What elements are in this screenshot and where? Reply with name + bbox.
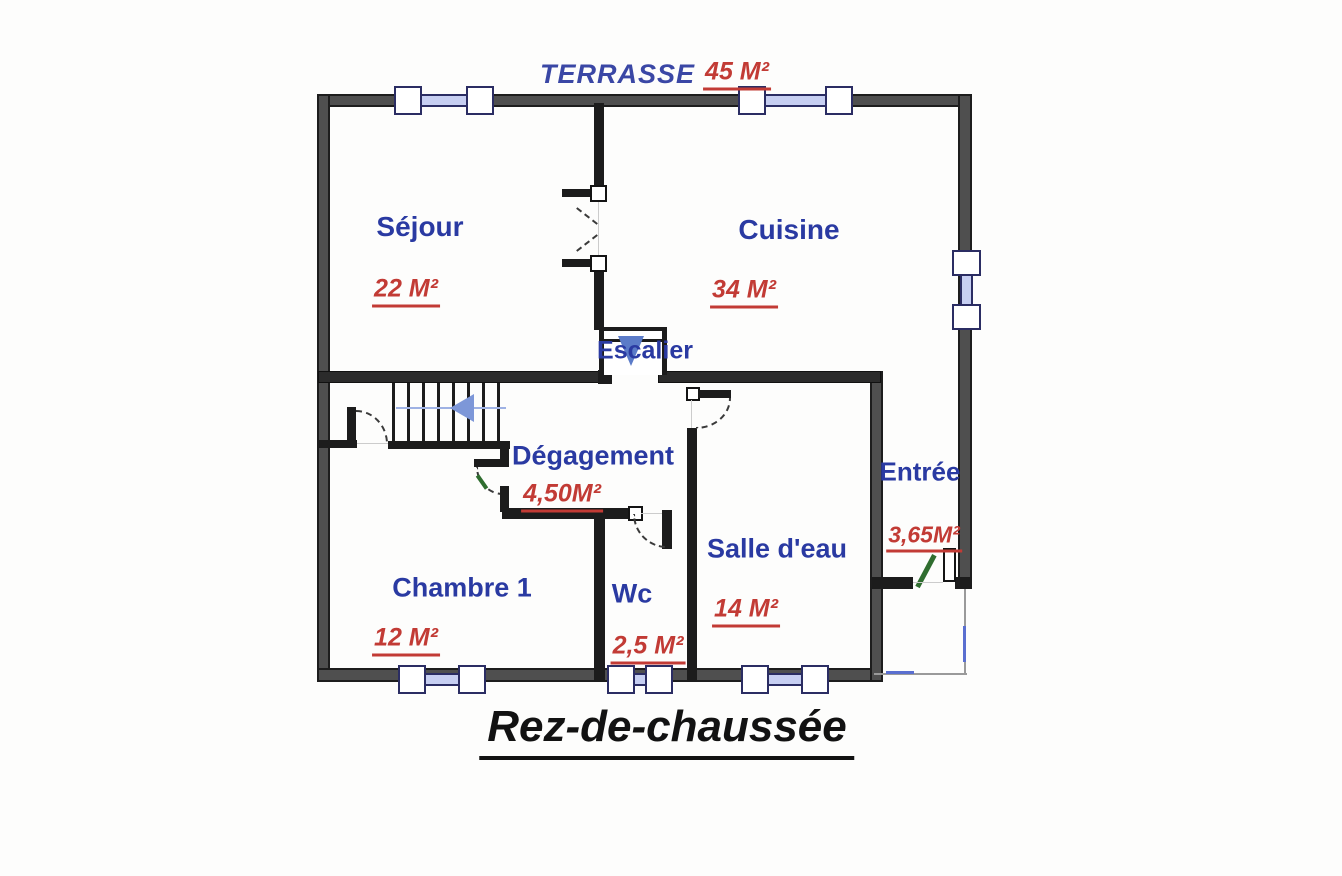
- porch-mark-vertical: [963, 626, 966, 662]
- door-sejour-swing-bottom: [576, 234, 598, 252]
- door-salledeau-leaf: [698, 390, 731, 398]
- stair-tread: [437, 383, 440, 447]
- window-glass: [769, 673, 801, 686]
- floor-plan: TERRASSE 45 M² Séjour 22 M² Cuisine 34 M…: [0, 0, 1342, 876]
- window-salledeau-bottom: [741, 666, 829, 693]
- window-glass: [766, 94, 825, 107]
- room-label-degagement: Dégagement: [512, 441, 674, 472]
- door-sejour-swing-top: [576, 207, 598, 225]
- window-pane: [952, 250, 981, 276]
- stair-tread: [497, 383, 500, 447]
- terrasse-area: 45 M²: [703, 58, 771, 91]
- wall-chambre-wc: [594, 515, 605, 682]
- window-pane: [458, 665, 486, 694]
- wall-entree-bottom: [870, 577, 913, 589]
- window-chambre-bottom: [398, 666, 486, 693]
- room-area-degagement: 4,50M²: [521, 480, 603, 513]
- window-sejour-top: [394, 87, 494, 114]
- stair-tread: [422, 383, 425, 447]
- room-area-chambre1: 12 M²: [372, 624, 440, 657]
- stair-direction-arrow: [450, 394, 474, 422]
- window-wc-bottom: [607, 666, 673, 693]
- door-sejour-jamb-bottom: [590, 255, 607, 272]
- door-chambre-left-swing: [356, 410, 388, 444]
- door-sejour-threshold: [598, 202, 599, 256]
- porch-mark-horizontal: [886, 671, 914, 674]
- room-label-entree: Entrée: [880, 457, 961, 488]
- wall-entree-divider: [870, 371, 883, 682]
- window-glass: [422, 94, 466, 107]
- wall-right: [958, 94, 972, 589]
- plan-title: Rez-de-chaussée: [479, 702, 854, 760]
- door-salledeau-threshold: [691, 400, 692, 428]
- wall-left: [317, 94, 330, 682]
- room-area-entree: 3,65M²: [886, 522, 962, 553]
- door-salledeau-swing: [696, 398, 731, 429]
- window-pane: [741, 665, 769, 694]
- front-door-leaf: [915, 554, 936, 588]
- door-wc-swing: [633, 514, 667, 548]
- door-chambre-left-threshold: [357, 443, 388, 444]
- window-pane: [466, 86, 494, 115]
- wall-sejour-upper: [594, 103, 604, 188]
- stair-bottom-wall: [388, 441, 510, 449]
- terrasse-label: TERRASSE: [540, 59, 695, 90]
- window-cuisine-right: [953, 250, 980, 330]
- wall-main-right: [658, 371, 881, 383]
- escalier-box-top: [599, 327, 667, 331]
- window-pane: [394, 86, 422, 115]
- window-cuisine-top: [738, 87, 853, 114]
- wall-entree-bottom-stub: [955, 577, 972, 589]
- wall-degagement-stub-h: [474, 459, 509, 467]
- stair-tread: [482, 383, 485, 447]
- wall-sejour-lower: [594, 269, 604, 330]
- front-door-threshold: [913, 582, 943, 583]
- window-glass: [960, 276, 973, 304]
- stair-tread: [407, 383, 410, 447]
- room-area-cuisine: 34 M²: [710, 276, 778, 309]
- room-label-wc: Wc: [612, 579, 653, 610]
- room-label-cuisine: Cuisine: [738, 214, 839, 246]
- window-pane: [825, 86, 853, 115]
- wall-main-left: [318, 371, 612, 383]
- front-door-leaf-open: [943, 548, 956, 582]
- window-pane: [398, 665, 426, 694]
- window-glass: [635, 673, 645, 686]
- window-pane: [645, 665, 673, 694]
- window-pane: [801, 665, 829, 694]
- room-label-chambre1: Chambre 1: [392, 573, 532, 604]
- window-glass: [426, 673, 458, 686]
- wall-wc-salledeau: [687, 428, 697, 682]
- room-label-salledeau: Salle d'eau: [707, 534, 847, 565]
- door-wc-threshold: [641, 513, 662, 514]
- door-sejour-jamb-top: [590, 185, 607, 202]
- stair-tread: [392, 383, 395, 447]
- room-area-wc: 2,5 M²: [611, 632, 686, 665]
- window-pane: [607, 665, 635, 694]
- room-area-sejour: 22 M²: [372, 275, 440, 308]
- window-pane: [952, 304, 981, 330]
- room-label-escalier: Escalier: [597, 337, 693, 366]
- room-label-sejour: Séjour: [376, 211, 463, 243]
- door-chambre-left-leaf: [347, 407, 356, 448]
- room-area-salledeau: 14 M²: [712, 595, 780, 628]
